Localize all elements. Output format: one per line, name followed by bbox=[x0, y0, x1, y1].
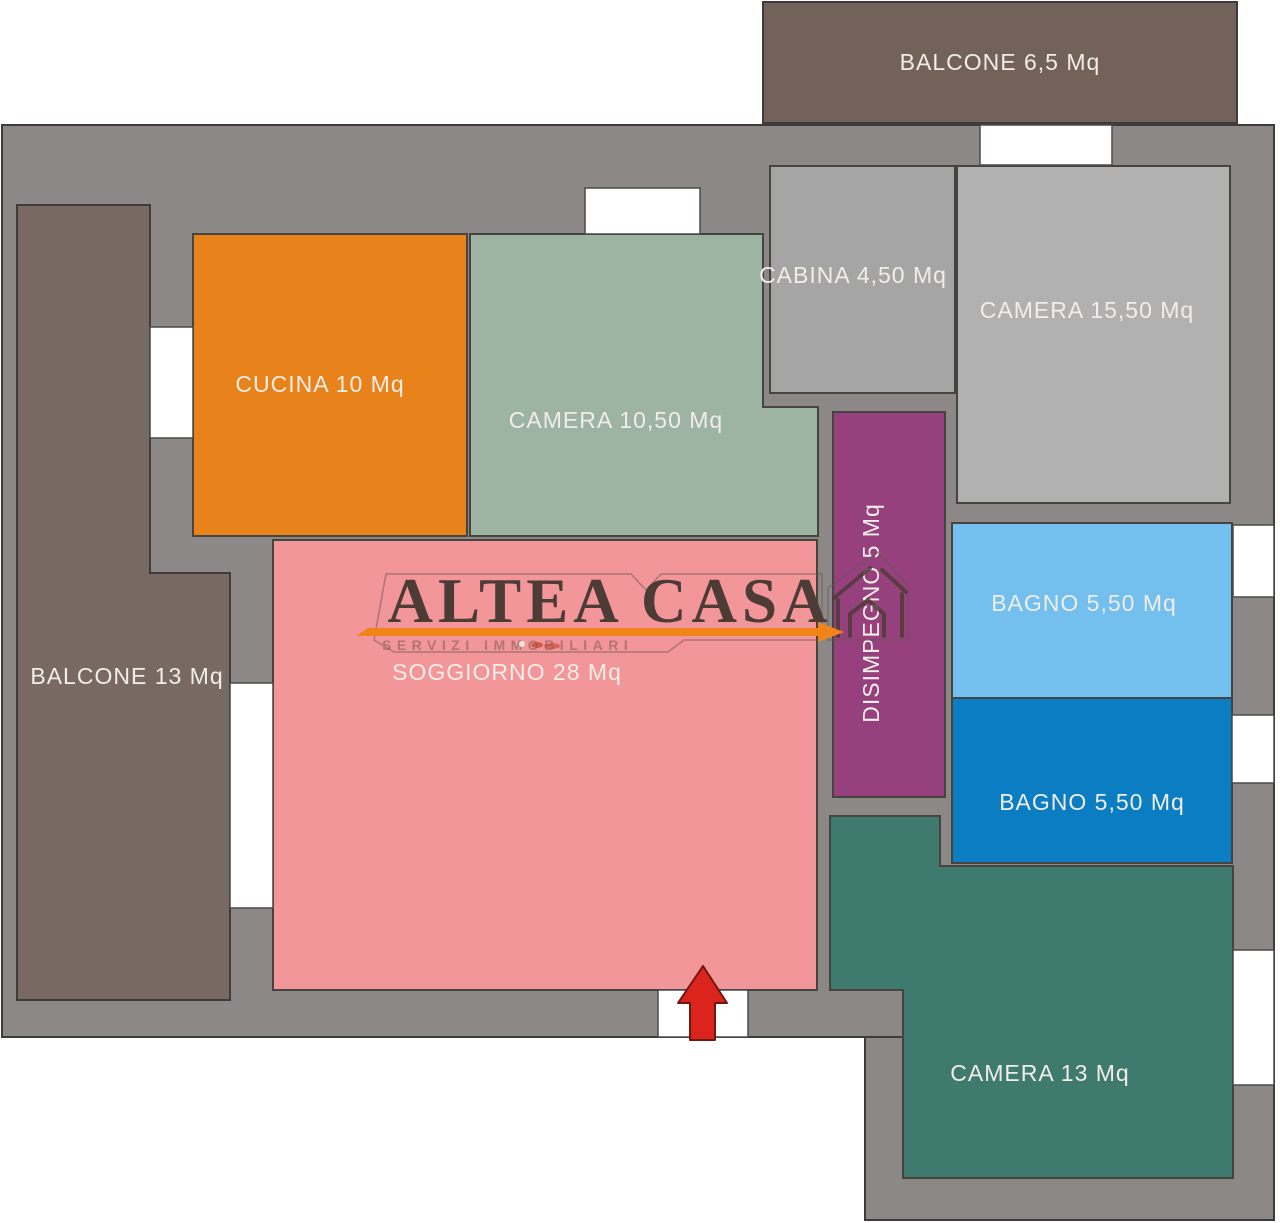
label-balcone-left: BALCONE 13 Mq bbox=[30, 663, 223, 689]
label-bagno-2: BAGNO 5,50 Mq bbox=[999, 789, 1185, 815]
watermark-dot-icon bbox=[519, 641, 525, 647]
agency-watermark: ALTEA CASA SERVIZI IMMOBILIARI bbox=[356, 552, 908, 653]
opening-balcone-left-door bbox=[230, 683, 273, 908]
opening-balcone-top-door bbox=[980, 125, 1112, 165]
label-cucina: CUCINA 10 Mq bbox=[235, 371, 404, 397]
watermark-tagline-text: SERVIZI IMMOBILIARI bbox=[382, 637, 633, 653]
watermark-dot-icon bbox=[544, 643, 560, 649]
opening-bagno-2-window bbox=[1232, 715, 1274, 783]
label-balcone-top: BALCONE 6,5 Mq bbox=[900, 49, 1101, 75]
watermark-accent-bar bbox=[356, 628, 818, 636]
label-camera-10: CAMERA 10,50 Mq bbox=[509, 407, 723, 433]
watermark-brand-text: ALTEA CASA bbox=[387, 566, 832, 636]
room-camera-15 bbox=[957, 166, 1230, 503]
label-camera-13: CAMERA 13 Mq bbox=[950, 1060, 1129, 1086]
label-cabina: CABINA 4,50 Mq bbox=[759, 262, 947, 288]
opening-cucina-window bbox=[150, 327, 193, 438]
label-bagno-1: BAGNO 5,50 Mq bbox=[991, 590, 1177, 616]
floorplan-drawing: BALCONE 6,5 Mq CABINA 4,50 Mq CAMERA 15,… bbox=[0, 0, 1280, 1223]
label-soggiorno: SOGGIORNO 28 Mq bbox=[392, 659, 622, 685]
opening-camera-10-window bbox=[585, 188, 700, 234]
room-disimpegno bbox=[833, 412, 945, 797]
room-bagno-2 bbox=[952, 698, 1232, 863]
label-camera-15: CAMERA 15,50 Mq bbox=[980, 297, 1194, 323]
opening-bagno-1-window bbox=[1233, 525, 1274, 597]
watermark-dot-icon bbox=[531, 642, 543, 648]
floorplan: BALCONE 6,5 Mq CABINA 4,50 Mq CAMERA 15,… bbox=[0, 0, 1280, 1223]
opening-camera-13-window bbox=[1233, 950, 1274, 1085]
